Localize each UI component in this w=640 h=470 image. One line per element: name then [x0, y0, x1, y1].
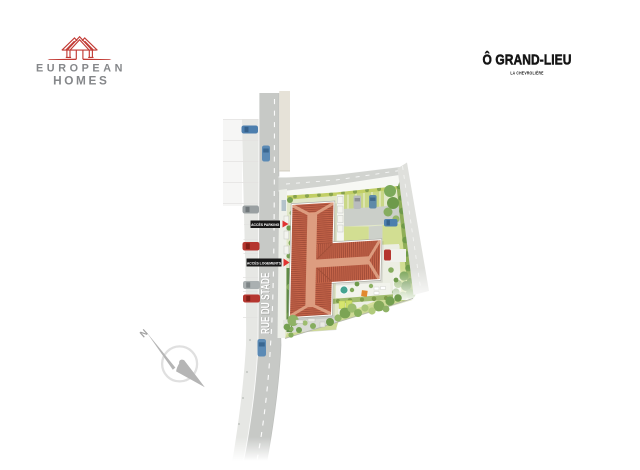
svg-text:ACCÈS LOGEMENTS: ACCÈS LOGEMENTS: [247, 260, 282, 265]
svg-text:Ô GRAND-LIEU: Ô GRAND-LIEU: [483, 51, 572, 68]
svg-text:HOMES: HOMES: [53, 73, 109, 87]
svg-text:ACCÈS PARKING: ACCÈS PARKING: [251, 222, 280, 227]
svg-text:RUE DU STADE: RUE DU STADE: [260, 273, 273, 335]
svg-text:LA CHEVROLIÈRE: LA CHEVROLIÈRE: [510, 70, 543, 76]
